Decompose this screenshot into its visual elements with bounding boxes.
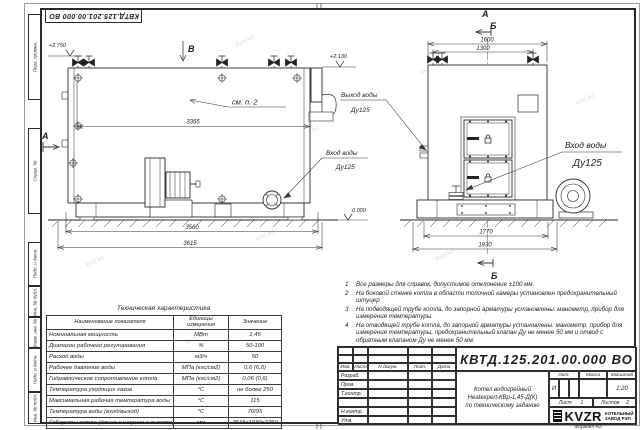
- tech-value: 115: [229, 396, 282, 407]
- tech-unit: МПа (кгс/см2): [174, 374, 229, 385]
- company-logo-cell: KVZR КОТЕЛЬНЫЙ ЗАВОД РЭП: [549, 407, 637, 425]
- tech-name: Расход воды: [47, 352, 174, 363]
- table-row: Диапазон рабочего регулирования%50-100: [47, 341, 282, 352]
- tech-value: 0,6 (6,0): [229, 363, 282, 374]
- table-row: Рабочее давление водыМПа (кгс/см2)0,6 (6…: [47, 363, 282, 374]
- table-row: Температура воды (вход/выход)°С70/95: [47, 407, 282, 418]
- sheets-label: Листов: [601, 400, 619, 406]
- notes-list: 1Все размеры для справок, допустимое отк…: [345, 281, 633, 346]
- inlet-callout-line2: Ду125: [335, 164, 355, 171]
- list-item: 2На боковой стенке котла в области топоч…: [345, 290, 633, 305]
- tb-scale-header: Масштаб: [607, 371, 637, 379]
- tb-header-docum: N докум.: [368, 363, 408, 371]
- drawing-sheet: kvzr.kz kvzr.kz kvzr.kz kvzr.kz kvzr.kz …: [0, 0, 644, 430]
- inlet-callout-line1: Вход воды: [326, 149, 358, 157]
- outlet-callout-line1: Выход воды: [341, 91, 378, 99]
- tech-header-unit: Единицы измерения: [174, 316, 229, 330]
- note-text: На боковой стенке котла в области топочн…: [356, 290, 633, 305]
- format-label: Формат А3: [540, 424, 636, 430]
- tech-value: не более 250: [229, 385, 282, 396]
- dim-1300: 1300: [476, 46, 490, 52]
- tech-unit: МПа (кгс/см2): [174, 363, 229, 374]
- tb-lit-header: Лит.: [549, 371, 579, 379]
- dim-1770: 1770: [479, 230, 493, 236]
- tb-row-nkontr: Н.контр.: [338, 407, 368, 416]
- tb-mass-header: Масса: [579, 371, 607, 379]
- sheet-value: 1: [580, 400, 583, 406]
- product-name-line1: Котел водогрейный: [474, 386, 531, 394]
- tech-value: 70/95: [229, 407, 282, 418]
- product-name-cell: Котел водогрейный Heatexpert-КВр-1,45-Д(…: [456, 371, 549, 425]
- note-text: Все размеры для справок, допустимое откл…: [356, 281, 633, 289]
- mark-label-b: Б: [490, 21, 497, 31]
- tech-name: Гидравлическое сопротивление котла: [47, 374, 174, 385]
- table-row: Температура уходящих газов°Сне более 250: [47, 385, 282, 396]
- tech-name: Температура воды (вход/выход): [47, 407, 174, 418]
- tech-unit: м3/ч: [174, 352, 229, 363]
- tech-value: 50-100: [229, 341, 282, 352]
- note-text: На отводящей трубе котла, до запорной ар…: [356, 322, 633, 345]
- level-top: +2.750: [49, 43, 67, 49]
- tech-unit: МВт: [174, 330, 229, 341]
- note-text: На подводящей трубе котла, до запорной а…: [356, 306, 633, 321]
- tb-row-blank: [338, 398, 368, 407]
- tb-header-podp: Подп.: [408, 363, 432, 371]
- tech-value: 3615х1930х2250: [229, 418, 282, 429]
- tb-mass-value: [579, 379, 607, 398]
- side-view: [48, 56, 338, 227]
- tech-header-value: Значение: [229, 316, 282, 330]
- list-item: 3На подводящей трубе котла, до запорной …: [345, 306, 633, 321]
- tech-value: 0,06 (0,6): [229, 374, 282, 385]
- level-ground: 0.000: [352, 208, 367, 214]
- product-name-line2: Heatexpert-КВр-1,45-Д(К): [468, 394, 538, 402]
- inlet-right-callout-line2: Ду125: [572, 158, 602, 169]
- kvzr-logo-subtitle: КОТЕЛЬНЫЙ ЗАВОД РЭП: [605, 411, 634, 421]
- table-row: Максимальная рабочая температура воды°С1…: [47, 396, 282, 407]
- tb-row-utv: Утв.: [338, 416, 368, 425]
- table-row: Гидравлическое сопротивление котлаМПа (к…: [47, 374, 282, 385]
- dim-3615: 3615: [183, 241, 197, 247]
- tech-header-name: Наименование показателя: [47, 316, 174, 330]
- tech-value: 50: [229, 352, 282, 363]
- tech-name: Диапазон рабочего регулирования: [47, 341, 174, 352]
- tech-table: Наименование показателя Единицы измерени…: [46, 315, 282, 429]
- note-number: 4: [345, 322, 356, 345]
- tech-value: 1,45: [229, 330, 282, 341]
- tech-name: Габариты котла (длина х ширина х высота): [47, 418, 174, 429]
- tech-name: Номинальная мощность: [47, 330, 174, 341]
- tb-scale-value: 1:20: [607, 379, 637, 398]
- dim-3560: 3560: [185, 225, 199, 231]
- tb-row-razrab: Разраб.: [338, 371, 368, 380]
- section-label-a: А: [41, 131, 49, 141]
- list-item: 4На отводящей трубе котла, до запорной а…: [345, 322, 633, 345]
- sheets-value: 2: [626, 400, 629, 406]
- tb-header-izm: Изм.: [338, 363, 353, 371]
- note-number: 1: [345, 281, 356, 289]
- sheet-label: Лист: [559, 400, 572, 406]
- note-number: 2: [345, 290, 356, 305]
- list-item: 1Все размеры для справок, допустимое отк…: [345, 281, 633, 289]
- tb-header-list: Лист: [353, 363, 368, 371]
- inlet-right-callout-line1: Вход воды: [565, 140, 607, 150]
- tb-lit-value: И: [549, 379, 559, 398]
- tech-unit: %: [174, 341, 229, 352]
- tb-sheet-cell: Лист 1: [549, 398, 593, 407]
- table-row: Габариты котла (длина х ширина х высота)…: [47, 418, 282, 429]
- mark-label-b-bottom: Б: [491, 271, 498, 281]
- note-number: 3: [345, 306, 356, 321]
- tb-row-prov: Пров.: [338, 380, 368, 389]
- dim-3365: 3365: [186, 120, 200, 126]
- tech-unit: °С: [174, 385, 229, 396]
- tech-name: Максимальная рабочая температура воды: [47, 396, 174, 407]
- kvzr-logo-icon: [553, 410, 562, 422]
- kvzr-logo-text: KVZR: [565, 409, 602, 424]
- tb-sheets-cell: Листов 2: [593, 398, 637, 407]
- title-block: Изм. Лист N докум. Подп. Дата Разраб. Пр…: [337, 346, 636, 424]
- logo-subtitle-line2: ЗАВОД РЭП: [605, 416, 634, 421]
- view-label-b: В: [188, 44, 195, 54]
- tech-unit: °С: [174, 396, 229, 407]
- tech-unit: °С: [174, 407, 229, 418]
- table-row: Номинальная мощностьМВт1,45: [47, 330, 282, 341]
- mark-label-a: А: [481, 9, 489, 19]
- tb-row-tkontr: Т.контр.: [338, 389, 368, 398]
- tech-table-title: Техническая характеристика: [46, 305, 281, 312]
- tech-name: Температура уходящих газов: [47, 385, 174, 396]
- dim-1930: 1930: [478, 243, 492, 249]
- level-flue: +2.130: [330, 54, 348, 60]
- tech-name: Рабочее давление воды: [47, 363, 174, 374]
- see-note-callout: см. п. 2: [232, 98, 258, 107]
- tech-unit: мм: [174, 418, 229, 429]
- outlet-callout-line2: Ду125: [350, 107, 370, 114]
- table-row: Расход водым3/ч50: [47, 352, 282, 363]
- tech-table-header-row: Наименование показателя Единицы измерени…: [47, 316, 282, 330]
- title-block-doc-number: КВТД.125.201.00.000 ВО: [456, 347, 637, 371]
- dim-1600: 1600: [480, 38, 494, 44]
- product-name-line3: по техническому заданию: [465, 402, 539, 410]
- tb-header-data: Дата: [432, 363, 456, 371]
